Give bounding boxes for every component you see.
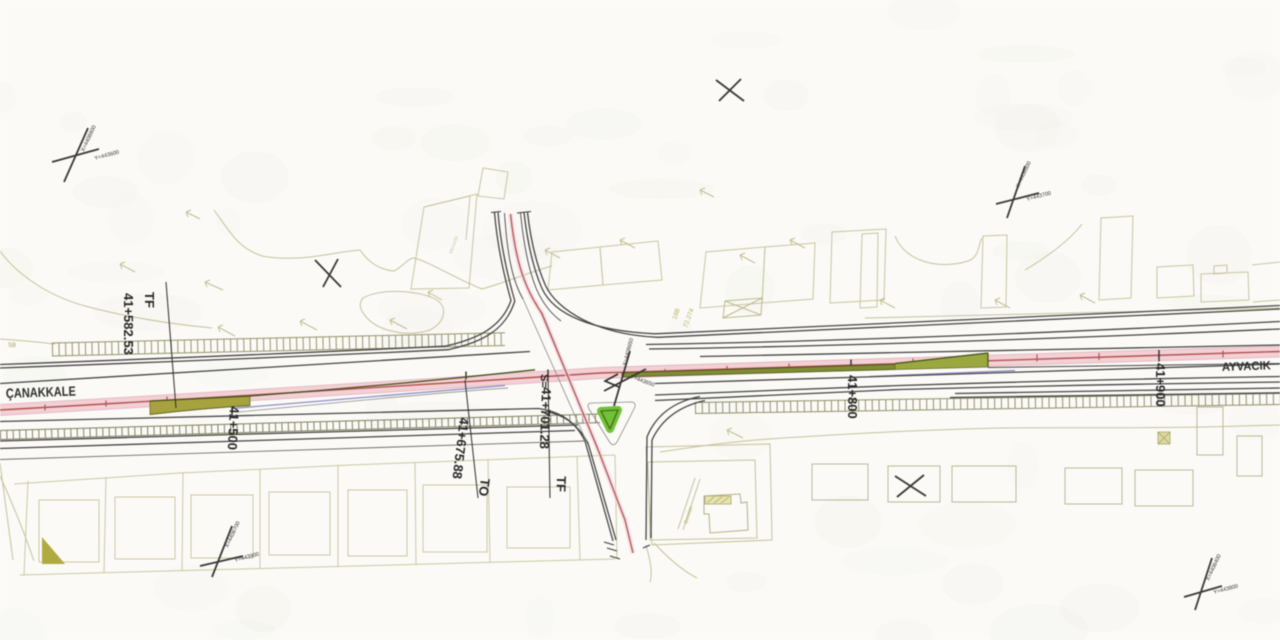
svg-text:TF: TF	[553, 476, 569, 492]
svg-text:ÇANAKKALE: ÇANAKKALE	[6, 384, 76, 401]
svg-text:41+500: 41+500	[225, 406, 242, 450]
svg-text:TF: TF	[142, 292, 157, 308]
svg-text:TO: TO	[476, 478, 493, 498]
svg-text:41+900: 41+900	[1153, 363, 1168, 407]
svg-text:41+800: 41+800	[845, 375, 860, 419]
svg-text:AYVACIK: AYVACIK	[1222, 358, 1272, 374]
svg-text:SB: SB	[8, 343, 16, 349]
svg-text:41+582.53: 41+582.53	[121, 293, 136, 355]
svg-text:41+701.28: 41+701.28	[537, 387, 554, 449]
